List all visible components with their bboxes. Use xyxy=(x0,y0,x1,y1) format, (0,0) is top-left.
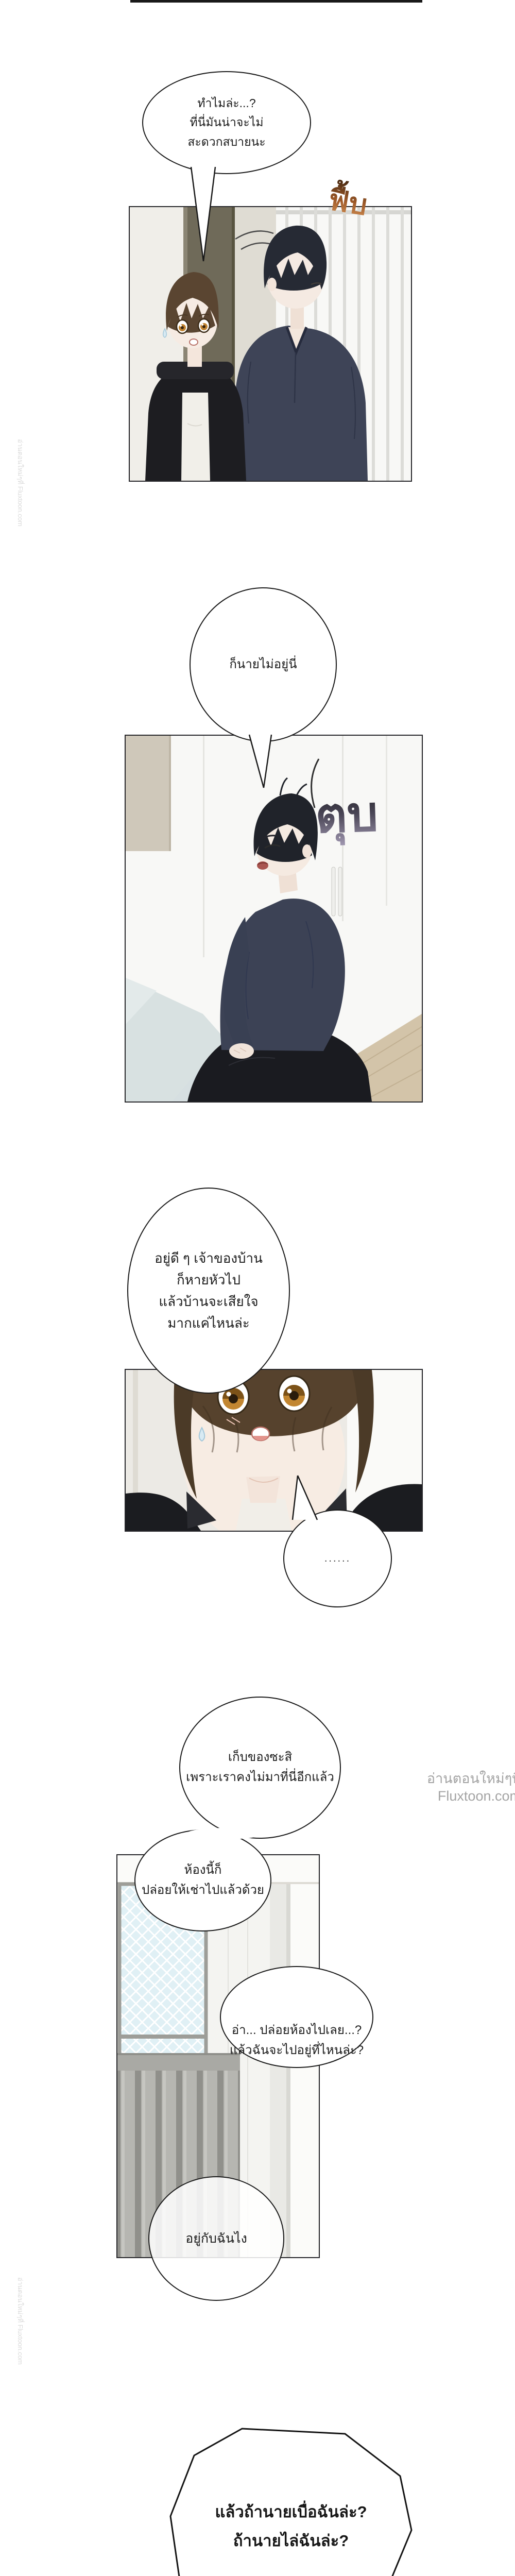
sfx-thud: ตุบ xyxy=(314,774,379,854)
panel-3-artwork xyxy=(126,1370,422,1531)
watermark-line: Fluxtoon.com xyxy=(356,1788,515,1805)
bubble-1-line: สะดวกสบายนะ xyxy=(187,132,265,151)
bubble-3-line: แล้วบ้านจะเสียใจ xyxy=(159,1291,258,1312)
speech-bubble-2: ก็นายไม่อยู่นี่ xyxy=(190,587,337,742)
bubble-4-tail xyxy=(289,1473,319,1521)
panel-2-man-sitting-floor xyxy=(125,735,423,1103)
panel-3-shocked-face-closeup xyxy=(125,1369,423,1532)
bubble-5a-line: เก็บของซะสิ xyxy=(228,1748,292,1768)
bubble-3-line: ก็หายหัวไป xyxy=(177,1269,241,1291)
bubble-1-tail xyxy=(190,166,217,264)
top-border-bar xyxy=(130,0,422,3)
bubble-2-tail xyxy=(248,734,273,790)
watermark-line: อ่านตอนใหม่ๆที่ xyxy=(356,1770,515,1788)
bubble-1-line: ที่นี่มันน่าจะไม่ xyxy=(190,113,264,132)
bubble-8-line: แล้วถ้านายเบื่อฉันล่ะ? xyxy=(185,2498,397,2527)
panel-1-two-men-hallway xyxy=(129,206,412,482)
bubble-5b-line: ห้องนี้ก็ xyxy=(184,1860,222,1880)
bubble-4-line: ...... xyxy=(324,1550,351,1567)
webtoon-page: ทำไมล่ะ...? ที่นี่มันน่าจะไม่ สะดวกสบายน… xyxy=(0,0,515,2576)
bubble-6-line: แล้วฉันจะไปอยู่ที่ไหนล่ะ? xyxy=(230,2041,364,2061)
shout-bubble-8-text: แล้วถ้านายเบื่อฉันล่ะ? ถ้านายไล่ฉันล่ะ? xyxy=(185,2498,397,2555)
speech-bubble-1: ทำไมล่ะ...? ที่นี่มันน่าจะไม่ สะดวกสบายน… xyxy=(142,71,311,174)
bubble-3-line: มากแค่ไหนล่ะ xyxy=(167,1312,250,1334)
bubble-join-patch xyxy=(186,1828,264,1839)
speech-bubble-4: ...... xyxy=(283,1510,392,1607)
panel-1-artwork xyxy=(130,207,411,481)
speech-bubble-7: อยู่กับฉันไง xyxy=(148,2176,284,2301)
bubble-5b-line: ปล่อยให้เช่าไปแล้วด้วย xyxy=(142,1880,264,1901)
speech-bubble-3: อยู่ดี ๆ เจ้าของบ้าน ก็หายหัวไป แล้วบ้าน… xyxy=(127,1188,290,1394)
bubble-5a-line: เพราะเราคงไม่มาที่นี่อีกแล้ว xyxy=(186,1768,334,1788)
speech-bubble-5a: เก็บของซะสิ เพราะเราคงไม่มาที่นี่อีกแล้ว xyxy=(179,1697,341,1839)
panel-2-artwork xyxy=(126,736,422,1101)
bubble-1-line: ทำไมล่ะ...? xyxy=(197,94,255,113)
bubble-3-line: อยู่ดี ๆ เจ้าของบ้าน xyxy=(154,1247,263,1269)
watermark-left-2: อ่านตอนใหม่ๆที่ Fluxtoon.com xyxy=(15,2277,26,2365)
sfx-thud-soft: ฟื้บ xyxy=(325,177,371,228)
bubble-8-line: ถ้านายไล่ฉันล่ะ? xyxy=(185,2527,397,2555)
bubble-7-line: อยู่กับฉันไง xyxy=(185,2228,247,2249)
speech-bubble-5b: ห้องนี้ก็ ปล่อยให้เช่าไปแล้วด้วย xyxy=(134,1829,271,1931)
watermark-left-1: อ่านตอนใหม่ๆที่ Fluxtoon.com xyxy=(15,439,26,527)
watermark-right-1: อ่านตอนใหม่ๆที่ Fluxtoon.com xyxy=(356,1770,515,1805)
bubble-2-line: ก็นายไม่อยู่นี่ xyxy=(229,655,297,675)
speech-bubble-6: อ่า... ปล่อยห้องไปเลย...? แล้วฉันจะไปอยู… xyxy=(220,1966,373,2068)
bubble-6-line: อ่า... ปล่อยห้องไปเลย...? xyxy=(232,2021,362,2041)
